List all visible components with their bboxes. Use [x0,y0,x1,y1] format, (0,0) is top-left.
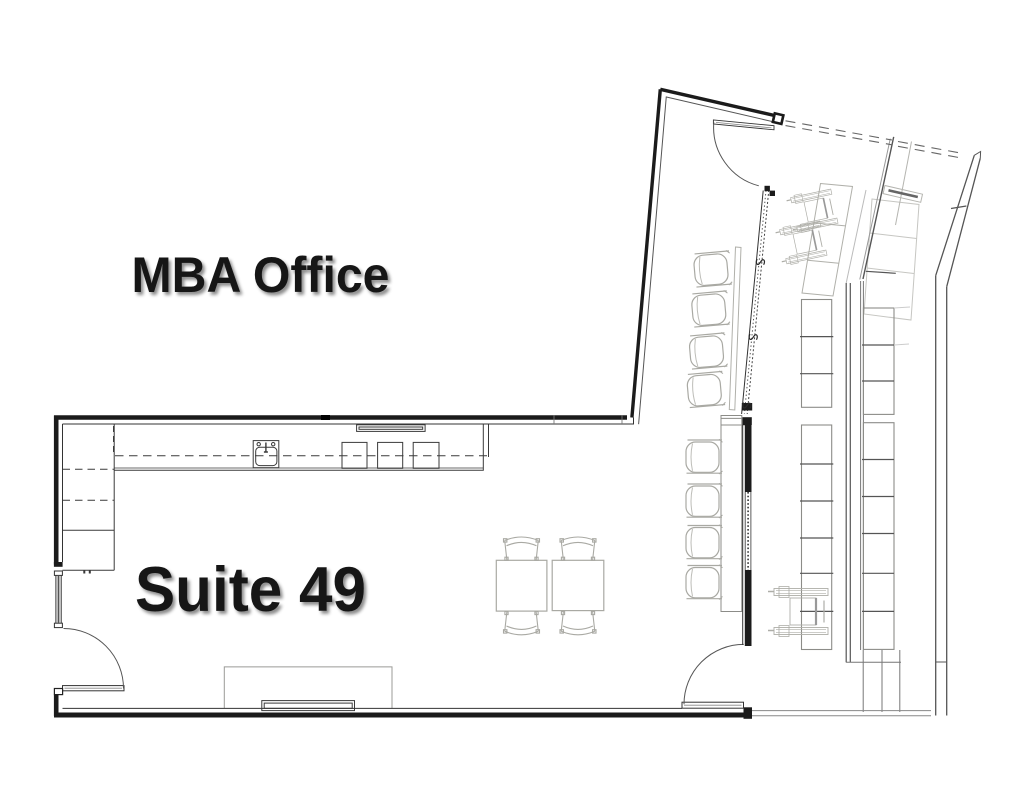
svg-text:Suite 49: Suite 49 [135,555,366,625]
svg-text:MBA Office: MBA Office [132,247,390,303]
